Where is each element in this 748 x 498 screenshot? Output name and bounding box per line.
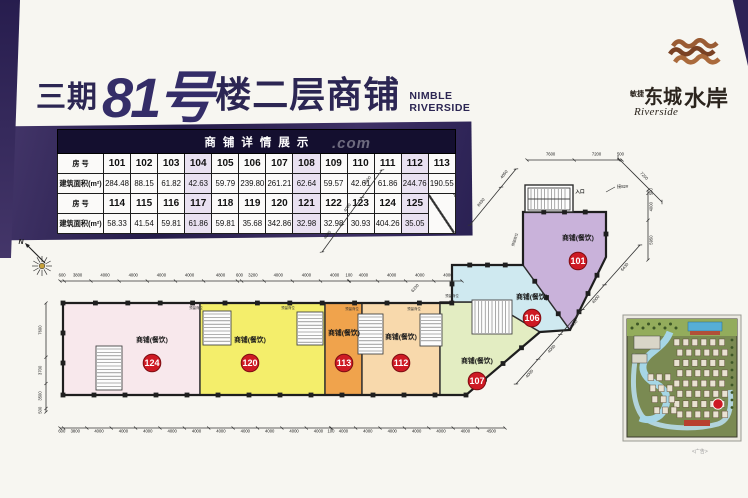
unit-113: [325, 303, 362, 395]
svg-text:3200: 3200: [248, 273, 258, 278]
adjacent-building-label: 接82#: [617, 183, 629, 190]
svg-text:预留商位: 预留商位: [407, 306, 421, 311]
svg-text:500: 500: [617, 152, 625, 157]
svg-text:8430: 8430: [476, 197, 486, 208]
svg-text:4000: 4000: [168, 429, 178, 434]
unit-124: [63, 303, 200, 395]
dim-chain: 6003800400040004000400040004000400040004…: [58, 426, 506, 433]
svg-text:120: 120: [242, 358, 257, 368]
svg-text:4000: 4000: [302, 273, 312, 278]
svg-text:4000: 4000: [359, 273, 369, 278]
svg-text:4000: 4000: [216, 429, 226, 434]
dim-chain: 84304050: [468, 169, 518, 226]
svg-text:4000: 4000: [388, 429, 398, 434]
svg-text:4000: 4000: [330, 273, 340, 278]
svg-text:7600: 7600: [546, 152, 556, 157]
svg-text:5950: 5950: [649, 235, 654, 245]
svg-text:4050: 4050: [499, 169, 509, 180]
svg-text:4000: 4000: [241, 429, 251, 434]
poster: 三期 81号 楼二层商铺 NIMBLE RIVERSIDE 敏捷 东城 水岸 R…: [0, 0, 748, 498]
svg-text:600: 600: [59, 273, 67, 278]
svg-text:4000: 4000: [387, 273, 397, 278]
svg-text:商铺(餐饮): 商铺(餐饮): [461, 356, 493, 365]
svg-text:4000: 4000: [443, 273, 453, 278]
svg-text:4000: 4000: [192, 429, 202, 434]
dim-chain: 50040005950: [646, 188, 653, 262]
svg-text:3800: 3800: [73, 273, 83, 278]
svg-text:4000: 4000: [274, 273, 284, 278]
svg-text:4000: 4000: [461, 429, 471, 434]
svg-text:3700: 3700: [38, 365, 43, 375]
dim-chain: 7200: [618, 156, 662, 204]
dim-chain: 400040004000: [320, 170, 384, 253]
dim-chain: 6003800400040004000400048006003200400040…: [58, 273, 463, 283]
svg-text:101: 101: [570, 256, 585, 266]
dim-chain: 760037003500500: [38, 301, 48, 413]
svg-text:预留商位: 预留商位: [510, 232, 519, 247]
compass: N: [18, 239, 52, 276]
svg-text:4000: 4000: [100, 273, 110, 278]
svg-text:4000: 4000: [524, 368, 534, 379]
svg-text:商铺(餐饮): 商铺(餐饮): [516, 292, 548, 301]
dim-extra: 6230: [410, 282, 420, 293]
svg-text:7200: 7200: [592, 152, 602, 157]
svg-text:4000: 4000: [265, 429, 275, 434]
svg-text:3500: 3500: [38, 391, 43, 401]
svg-text:预留商位: 预留商位: [189, 305, 203, 310]
svg-text:4000: 4000: [412, 429, 422, 434]
svg-text:预留商位: 预留商位: [281, 305, 295, 310]
svg-text:4000: 4000: [185, 273, 195, 278]
svg-text:4000: 4000: [339, 429, 349, 434]
svg-text:预留商位: 预留商位: [345, 306, 359, 311]
svg-text:6430: 6430: [619, 261, 629, 272]
svg-text:4000: 4000: [436, 429, 446, 434]
svg-text:107: 107: [469, 376, 484, 386]
svg-text:4000: 4000: [415, 273, 425, 278]
svg-text:100: 100: [327, 429, 335, 434]
svg-text:4000: 4000: [129, 273, 139, 278]
svg-text:4000: 4000: [157, 273, 167, 278]
svg-text:106: 106: [524, 313, 539, 323]
svg-text:商铺(餐饮): 商铺(餐饮): [562, 233, 594, 242]
svg-text:4000: 4000: [649, 201, 654, 211]
svg-text:124: 124: [144, 358, 159, 368]
svg-text:4000: 4000: [314, 429, 324, 434]
svg-text:4500: 4500: [487, 429, 497, 434]
svg-text:3800: 3800: [71, 429, 81, 434]
svg-text:4000: 4000: [322, 229, 332, 240]
svg-text:4000: 4000: [591, 294, 601, 305]
svg-text:112: 112: [394, 358, 409, 368]
svg-text:4000: 4000: [143, 429, 153, 434]
svg-text:4000: 4000: [342, 202, 352, 213]
svg-text:4000: 4000: [546, 343, 556, 354]
dim-chain: 76007200500: [525, 152, 624, 162]
floor-plan: 商铺(餐饮)124商铺(餐饮)120商铺(餐饮)113商铺(餐饮)112商铺(餐…: [0, 0, 748, 498]
svg-text:商铺(餐饮): 商铺(餐饮): [136, 335, 168, 344]
svg-text:113: 113: [337, 358, 352, 368]
svg-text:7600: 7600: [38, 325, 43, 335]
svg-text:4800: 4800: [216, 273, 226, 278]
entrance-label: 入口: [575, 189, 585, 195]
current-building-marker: [713, 399, 723, 409]
site-map: [623, 315, 741, 441]
svg-text:商铺(餐饮): 商铺(餐饮): [328, 328, 360, 337]
svg-text:4000: 4000: [363, 429, 373, 434]
svg-text:预留商位: 预留商位: [445, 293, 459, 298]
svg-text:N: N: [18, 239, 24, 246]
svg-text:4000: 4000: [94, 429, 104, 434]
svg-text:7200: 7200: [639, 171, 650, 182]
svg-text:商铺(餐饮): 商铺(餐饮): [385, 332, 417, 341]
svg-text:600: 600: [58, 429, 66, 434]
svg-text:4000: 4000: [362, 174, 372, 185]
svg-text:100: 100: [346, 273, 354, 278]
svg-text:商铺(餐饮): 商铺(餐饮): [234, 335, 266, 344]
svg-text:600: 600: [236, 273, 244, 278]
svg-text:4000: 4000: [289, 429, 299, 434]
svg-text:500: 500: [38, 406, 43, 414]
svg-text:4000: 4000: [119, 429, 129, 434]
